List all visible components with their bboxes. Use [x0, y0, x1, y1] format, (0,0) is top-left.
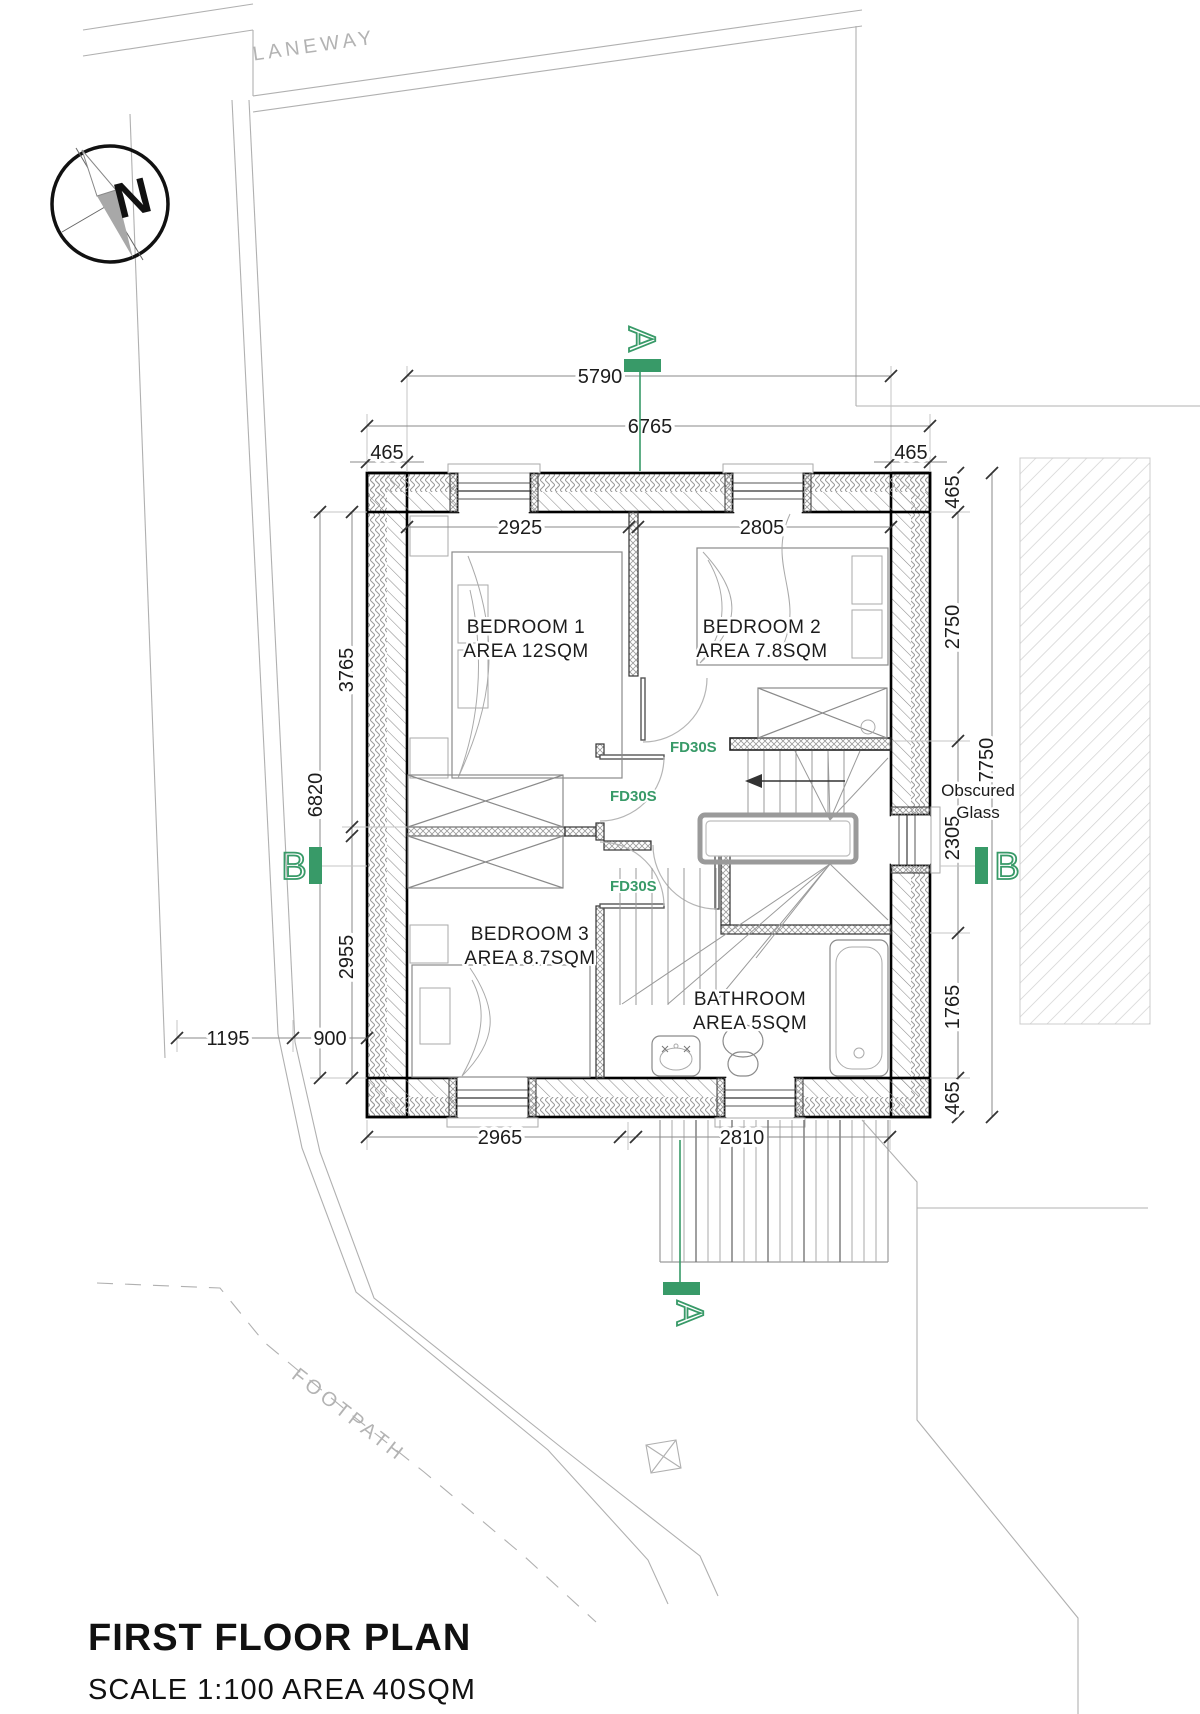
- room-label-bedroom3: BEDROOM 3: [471, 924, 590, 945]
- dim-2810: 2810: [720, 1127, 765, 1149]
- fire-door-label-3: FD30S: [610, 878, 657, 895]
- neighbour-building-hatch: [1020, 458, 1150, 1024]
- drawing-title: FIRST FLOOR PLAN: [88, 1617, 471, 1659]
- fire-door-label-1: FD30S: [670, 739, 717, 756]
- room-label-bedroom2: BEDROOM 2: [703, 617, 822, 638]
- section-letter-b-right: B: [994, 846, 1019, 888]
- door-leaf-bedroom3: [600, 904, 664, 908]
- dim-465-top-right: 465: [894, 442, 927, 464]
- section-letter-a-top: A: [620, 326, 662, 352]
- drawing-scale-area: SCALE 1:100 AREA 40SQM: [88, 1674, 476, 1706]
- section-bar-a-bottom: [663, 1282, 700, 1295]
- dim-1195: 1195: [206, 1028, 249, 1050]
- dim-2305: 2305: [942, 816, 964, 861]
- section-bar-b-right: [975, 847, 988, 884]
- dim-1765: 1765: [942, 985, 964, 1030]
- room-label-bedroom1: BEDROOM 1: [467, 617, 586, 638]
- dim-7750: 7750: [976, 738, 998, 783]
- section-letter-b-left: B: [281, 846, 306, 888]
- section-bar-b-left: [309, 847, 322, 884]
- dim-465-right-lower: 465: [942, 1081, 964, 1114]
- room-area-bedroom2: AREA 7.8SQM: [696, 641, 827, 662]
- room-label-bathroom: BATHROOM: [694, 989, 806, 1010]
- fire-door-label-2: FD30S: [610, 788, 657, 805]
- dim-465-right-upper: 465: [942, 475, 964, 508]
- obscured-glass-note-line1: Obscured: [941, 781, 1015, 800]
- partition-bedroom3-bathroom: [596, 906, 604, 1078]
- dim-2750: 2750: [942, 605, 964, 650]
- floor-plan-page: LANEWAY FOOTPATH N: [0, 0, 1200, 1714]
- partition-stair-bathroom: [721, 925, 891, 934]
- door-leaf-bedroom1: [600, 755, 664, 759]
- dim-6765: 6765: [628, 416, 673, 438]
- dim-5790: 5790: [578, 366, 623, 388]
- window-sill-bedroom3: [447, 1118, 538, 1127]
- room-area-bedroom1: AREA 12SQM: [463, 641, 588, 662]
- window-jamb: [450, 473, 458, 512]
- window-sill-bedroom1: [448, 464, 540, 473]
- dim-900: 900: [313, 1028, 346, 1050]
- dim-3765: 3765: [336, 648, 358, 693]
- door-leaf-bedroom2: [641, 678, 645, 740]
- partition-bedroom1-bedroom2: [629, 512, 638, 676]
- partition-wardrobe-divider: [407, 827, 565, 836]
- section-bar-a-top: [624, 359, 661, 372]
- dim-2805: 2805: [740, 517, 785, 539]
- dim-6820: 6820: [305, 773, 327, 818]
- dim-2965: 2965: [478, 1127, 523, 1149]
- window-sill-obscured: [931, 807, 940, 873]
- obscured-glass-note-line2: Glass: [956, 803, 999, 822]
- window-sill-bedroom2: [723, 464, 813, 473]
- floor-plan-drawing: LANEWAY FOOTPATH N: [0, 0, 1200, 1714]
- room-area-bathroom: AREA 5SQM: [693, 1013, 807, 1034]
- dim-2955: 2955: [336, 935, 358, 980]
- dim-465-top-left: 465: [370, 442, 403, 464]
- room-area-bedroom3: AREA 8.7SQM: [464, 948, 595, 969]
- section-letter-a-bottom: A: [668, 1300, 710, 1326]
- partition-stair-bedroom2: [730, 738, 891, 750]
- dim-2925: 2925: [498, 517, 543, 539]
